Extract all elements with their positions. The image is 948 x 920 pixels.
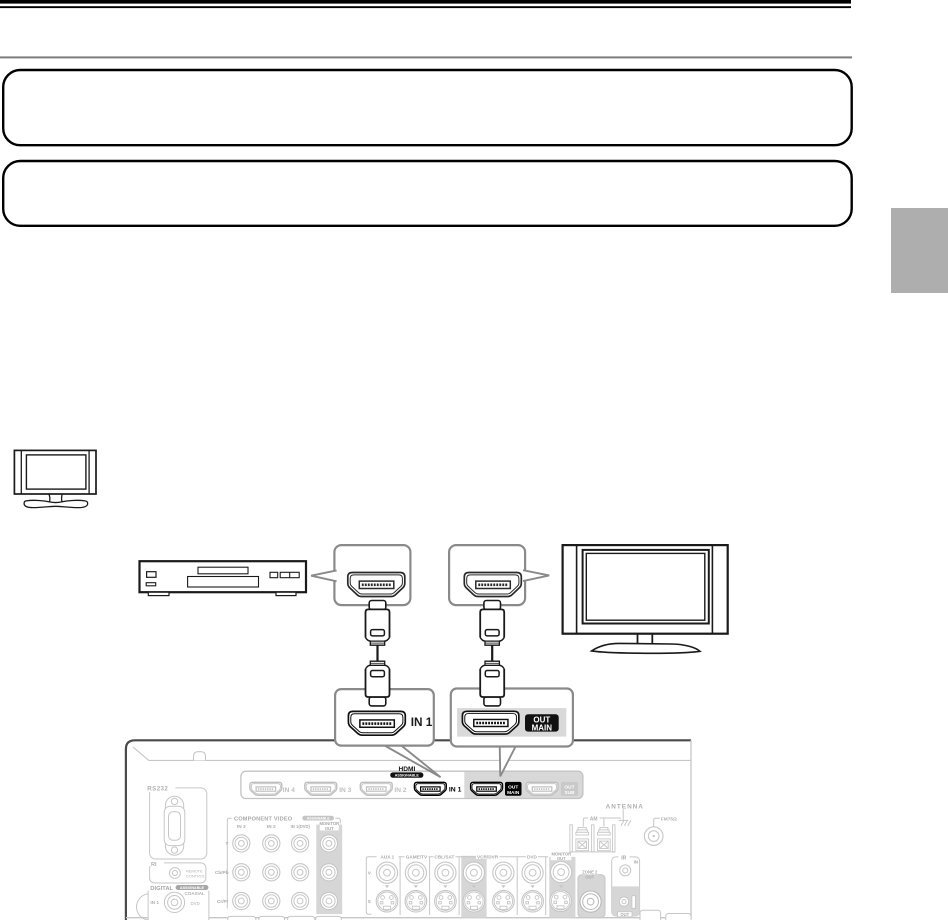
svg-text:RS232: RS232: [147, 786, 168, 793]
svg-text:OUT: OUT: [585, 874, 594, 879]
svg-text:COAXIAL: COAXIAL: [185, 891, 206, 896]
svg-text:AUX 1: AUX 1: [380, 854, 394, 859]
svg-text:CONTROL: CONTROL: [186, 873, 206, 878]
svg-text:IN: IN: [634, 860, 638, 865]
svg-text:MAIN: MAIN: [532, 723, 553, 732]
svg-text:GAME/TV: GAME/TV: [406, 854, 428, 859]
svg-text:DIGITAL: DIGITAL: [150, 886, 173, 892]
svg-text:OUT: OUT: [557, 856, 566, 861]
svg-text:OUT: OUT: [325, 826, 334, 831]
svg-text:HDMI: HDMI: [399, 766, 416, 773]
svg-text:IN 1: IN 1: [411, 715, 433, 729]
svg-text:OUT: OUT: [564, 784, 574, 790]
svg-text:ASSIGNABLE: ASSIGNABLE: [395, 774, 420, 778]
svg-text:ASSIGNABLE: ASSIGNABLE: [180, 886, 205, 890]
svg-text:S: S: [368, 899, 371, 904]
svg-text:DVD: DVD: [191, 901, 200, 906]
svg-text:RI: RI: [151, 862, 157, 868]
svg-text:IN 2: IN 2: [394, 787, 406, 794]
svg-text:FM75Ω: FM75Ω: [661, 817, 677, 823]
svg-text:IN 2: IN 2: [267, 824, 276, 829]
svg-text:IN 1: IN 1: [449, 787, 462, 794]
svg-text:IN 3: IN 3: [339, 787, 351, 794]
svg-text:COMPONENT VIDEO: COMPONENT VIDEO: [234, 816, 293, 822]
svg-text:SUB: SUB: [564, 790, 575, 796]
svg-text:CBL/SAT: CBL/SAT: [434, 854, 454, 859]
svg-text:MAIN: MAIN: [507, 790, 520, 796]
svg-text:OUT: OUT: [620, 912, 629, 917]
svg-text:IN 1(DVD): IN 1(DVD): [291, 824, 311, 829]
svg-text:AM: AM: [590, 816, 598, 822]
svg-text:DVD: DVD: [527, 854, 538, 859]
svg-text:IN 3: IN 3: [237, 824, 246, 829]
svg-text:IN 1: IN 1: [150, 900, 159, 905]
svg-text:OUT: OUT: [508, 784, 518, 790]
svg-text:VCR/DVR: VCR/DVR: [477, 854, 499, 859]
svg-text:IN 4: IN 4: [283, 787, 295, 794]
svg-text:Cr/Pr: Cr/Pr: [217, 899, 229, 904]
svg-text:ANTENNA: ANTENNA: [606, 803, 644, 810]
svg-text:Cb/Pb: Cb/Pb: [215, 870, 229, 875]
svg-text:IR: IR: [621, 855, 626, 861]
